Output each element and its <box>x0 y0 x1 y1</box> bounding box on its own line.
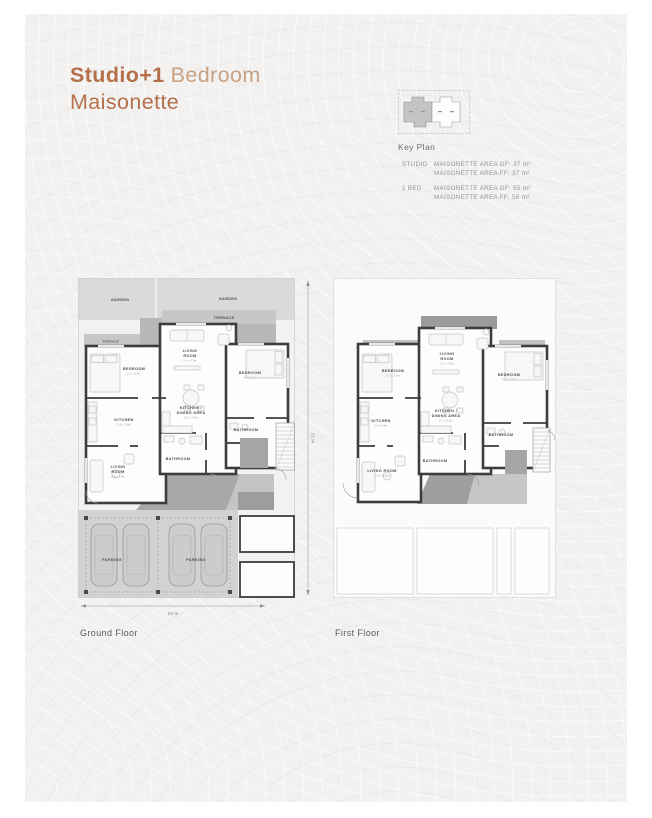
spec-line: MAISONETTE AREA GF: 37 m² <box>434 161 531 170</box>
room-dim: 2.7 x 4.3m <box>439 420 453 423</box>
room-dim: 2.7 x 4.3m <box>184 417 198 420</box>
roof-panel <box>497 528 511 594</box>
roof-panel <box>337 528 413 594</box>
service-core <box>240 438 268 468</box>
car <box>169 524 195 586</box>
room-dim: 3.1 x 4.0m <box>183 360 197 363</box>
room-dim: 4.0 x 2.7m <box>243 377 257 380</box>
room-label: ROOM <box>111 470 124 474</box>
car <box>91 524 117 586</box>
spec-line: MAISONETTE AREA FF: 37 m² <box>434 170 531 179</box>
title-regular: Bedroom <box>171 63 261 87</box>
key-plan-unit-highlighted <box>404 97 432 127</box>
room-label: BEDROOM <box>239 371 261 375</box>
room-label: PARKING <box>102 558 122 562</box>
room-dim: 2.4 x 2.4m <box>117 424 131 427</box>
dim-height-label: 21 m <box>311 433 316 444</box>
key-plan-label: Key Plan <box>398 142 435 152</box>
brochure-page: Studio+1Bedroom Maisonette Key Plan STUD… <box>0 0 652 818</box>
service-pad <box>238 492 274 510</box>
ground-floor-caption: Ground Floor <box>80 628 138 638</box>
room-label: KITCHEN <box>371 419 390 423</box>
room-label: KITCHEN <box>114 418 133 422</box>
room-label: BEDROOM <box>382 369 404 373</box>
room-dim: 4.0 x 2.7m <box>502 379 516 382</box>
room-dim: 2.7 x 3.0m <box>386 375 400 378</box>
room-dim: 2.4 x 2.4m <box>374 425 388 428</box>
spec-line: MAISONETTE AREA FF: 56 m² <box>434 194 531 203</box>
ground-floor-plan: GARDEN GARDEN TERRACE TERRACE BEDROOM 2.… <box>78 278 295 618</box>
room-label: TERRACE <box>102 340 119 344</box>
height-dimension: 21 m <box>301 278 315 598</box>
page-title: Studio+1Bedroom Maisonette <box>70 62 261 116</box>
room-label: LIVING <box>440 352 455 356</box>
room-label: PARKING <box>186 558 206 562</box>
title-line1: Studio+1Bedroom <box>70 62 261 89</box>
first-floor-caption: First Floor <box>335 628 380 638</box>
garage-box <box>240 516 294 552</box>
room-label: BATHROOM <box>423 459 448 463</box>
spec-type: 1 BED <box>402 185 434 202</box>
spec-line: MAISONETTE AREA GF: 55 m² <box>434 185 531 194</box>
paper-background: Studio+1Bedroom Maisonette Key Plan STUD… <box>25 14 627 802</box>
title-line2: Maisonette <box>70 89 261 116</box>
room-label: KITCHEN / <box>435 409 458 413</box>
roof-panel <box>417 528 493 594</box>
room-dim: 3.1 x 4.0m <box>440 363 454 366</box>
room-label: LIVING <box>183 349 198 353</box>
room-dim: 3.4 x 3.4m <box>111 476 125 479</box>
room-label: GARDEN <box>111 298 130 302</box>
car <box>201 524 227 586</box>
first-floor-plan: BEDROOM 2.7 x 3.0m LIVING ROOM 3.1 x 4.0… <box>333 278 556 598</box>
service-core <box>505 450 527 474</box>
room-label: BATHROOM <box>489 433 514 437</box>
spec-lines: MAISONETTE AREA GF: 37 m² MAISONETTE ARE… <box>434 161 531 178</box>
room-label: ROOM <box>440 357 453 361</box>
key-plan-diagram <box>398 90 470 134</box>
title-bold: Studio+1 <box>70 63 165 87</box>
room-label: LIVING ROOM <box>367 469 396 473</box>
room-label: DINING AREA <box>432 414 461 418</box>
room-dim: 3.4 x 3.4m <box>375 475 389 478</box>
dim-width-label: 14 m <box>168 611 179 616</box>
area-specs: STUDIO MAISONETTE AREA GF: 37 m² MAISONE… <box>402 161 622 209</box>
spec-type: STUDIO <box>402 161 434 178</box>
spec-lines: MAISONETTE AREA GF: 55 m² MAISONETTE ARE… <box>434 185 531 202</box>
spec-row-1bed: 1 BED MAISONETTE AREA GF: 55 m² MAISONET… <box>402 185 622 202</box>
room-label: TERRACE <box>214 316 235 320</box>
room-dim: 2.7 x 3.0m <box>127 373 141 376</box>
room-label: BEDROOM <box>498 373 520 377</box>
room-label: DINING AREA <box>177 411 206 415</box>
room-label: BEDROOM <box>123 367 145 371</box>
room-label: LIVING <box>111 465 126 469</box>
room-label: KITCHEN / <box>180 406 203 410</box>
garage-box <box>240 562 294 597</box>
width-dimension: 14 m <box>81 604 265 616</box>
spec-row-studio: STUDIO MAISONETTE AREA GF: 37 m² MAISONE… <box>402 161 622 178</box>
room-label: BATHROOM <box>166 457 191 461</box>
room-label: GARDEN <box>219 297 238 301</box>
room-label: ROOM <box>183 354 196 358</box>
car <box>123 524 149 586</box>
key-plan-unit-outline <box>432 97 460 127</box>
room-label: BATHROOM <box>234 428 259 432</box>
roof-panel <box>515 528 549 594</box>
